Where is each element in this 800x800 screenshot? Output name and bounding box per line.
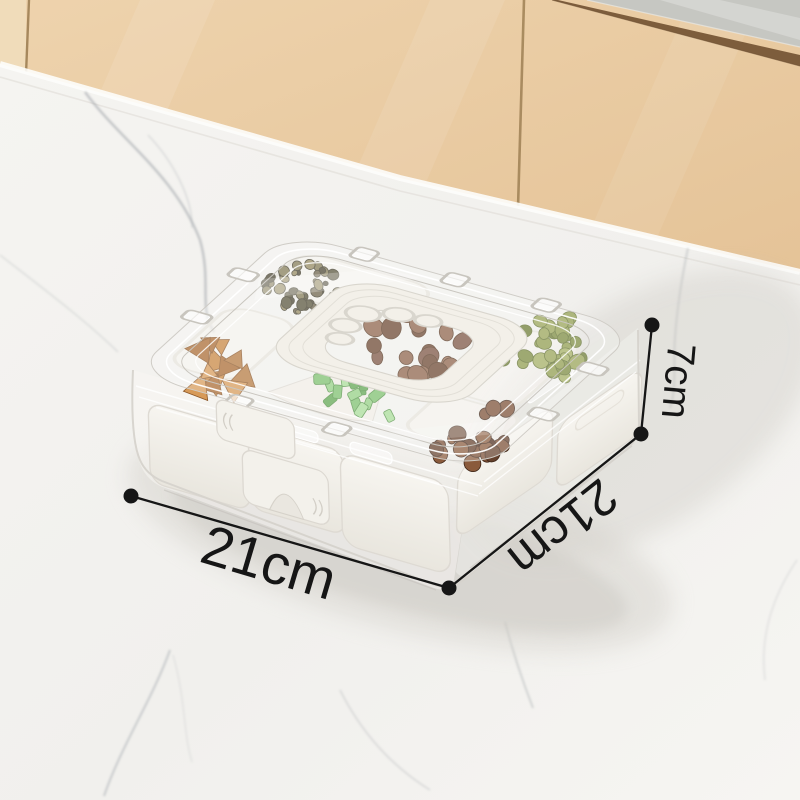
height-dot-top	[645, 318, 660, 333]
product-photo-scene: 21cm 21cm 7cm	[0, 0, 800, 800]
width-dot-left	[124, 489, 139, 504]
depth-dot-right	[634, 427, 649, 442]
height-dimension-label: 7cm	[653, 341, 703, 420]
scene-svg: 21cm 21cm 7cm	[0, 0, 800, 800]
corner-dot-front	[442, 581, 457, 596]
